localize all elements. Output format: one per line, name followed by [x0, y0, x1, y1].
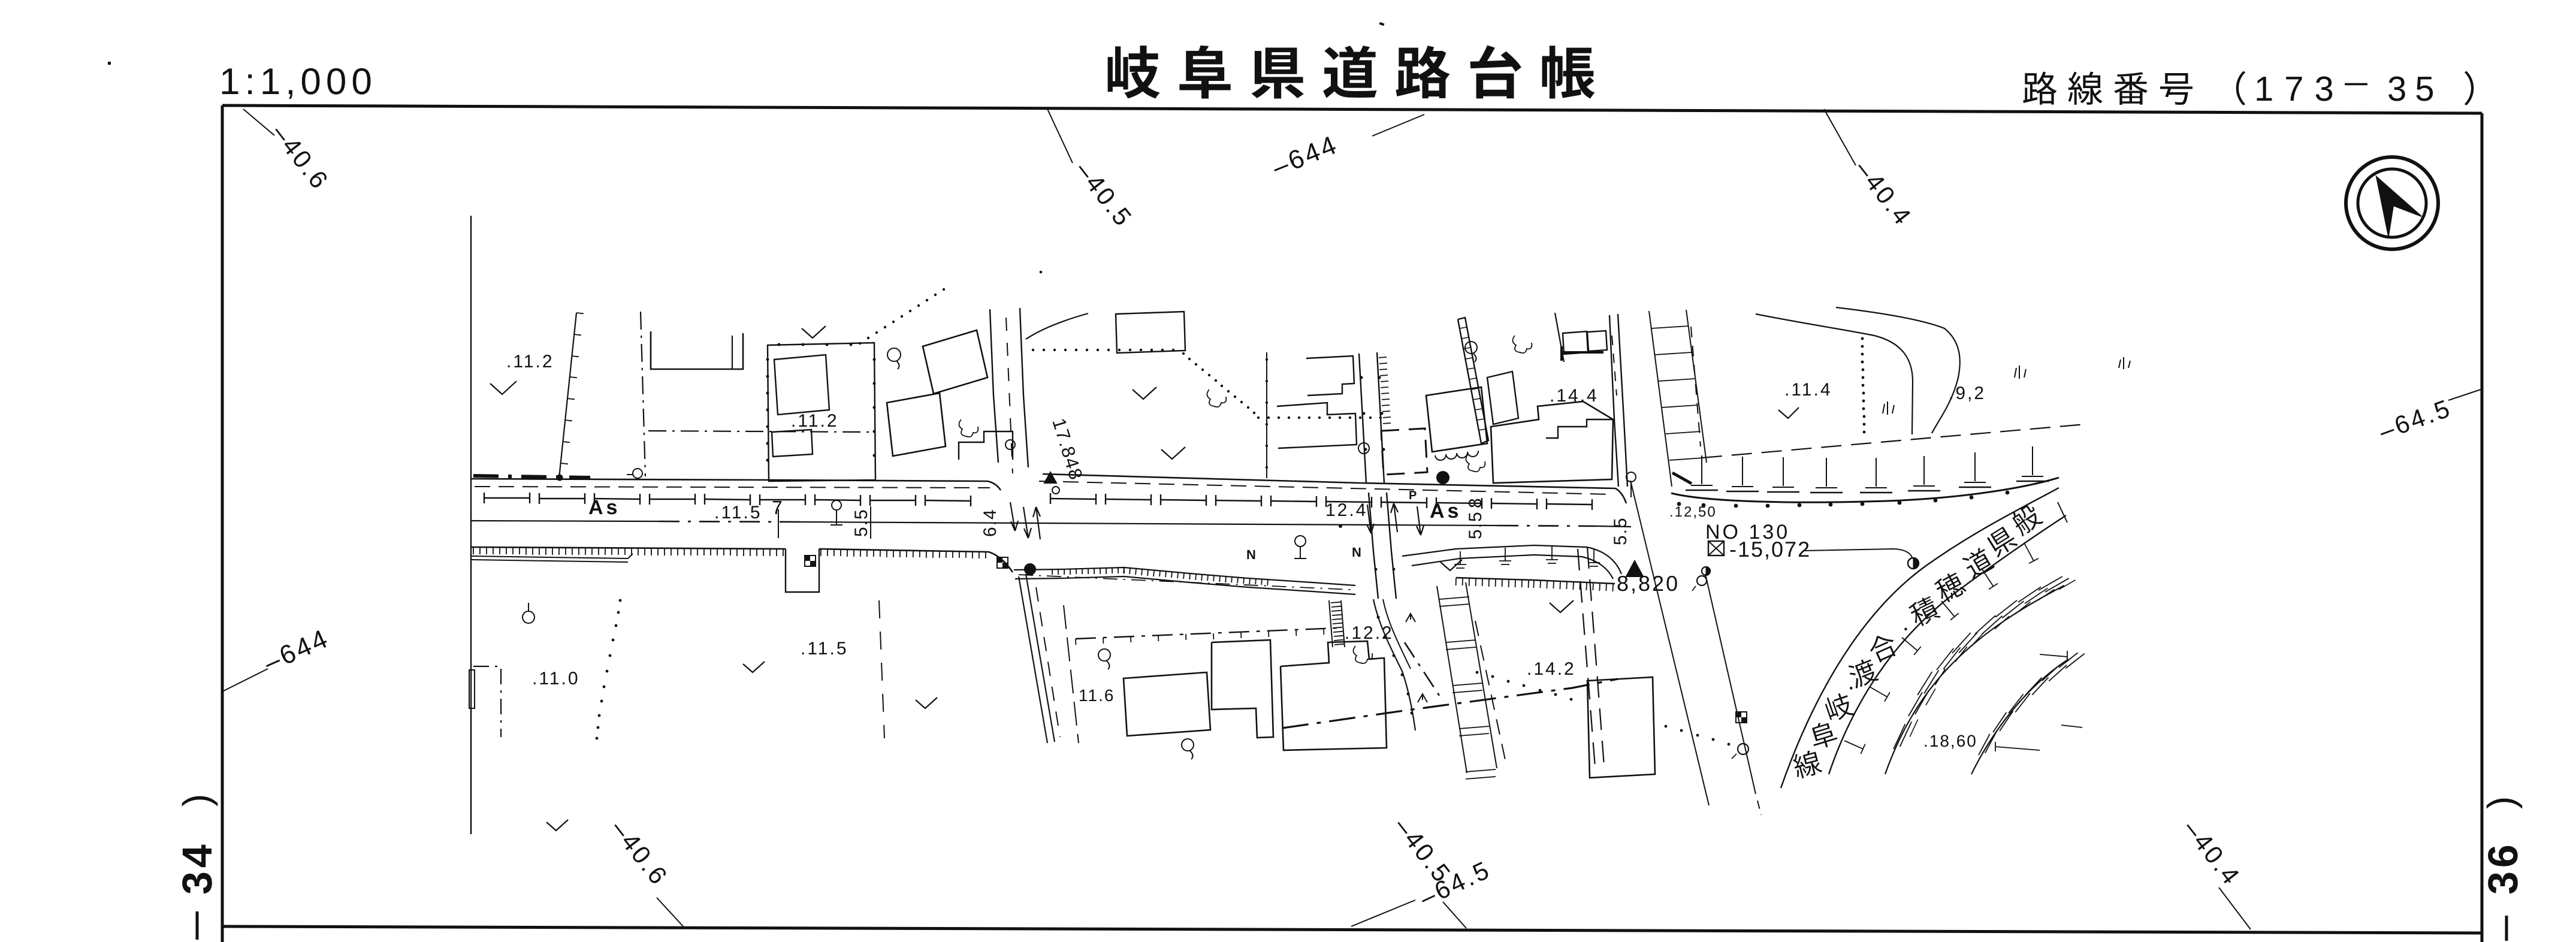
svg-text:5.5: 5.5	[851, 508, 871, 537]
svg-text:–64.5: –64.5	[2375, 394, 2456, 446]
svg-text:P: P	[1409, 489, 1417, 502]
svg-text:.18,60: .18,60	[1923, 732, 1977, 750]
svg-text:–40.4: –40.4	[2178, 815, 2246, 892]
svg-text:.12,50: .12,50	[1669, 504, 1717, 520]
svg-text:.14.4: .14.4	[1550, 386, 1599, 406]
svg-text:8,820: 8,820	[1617, 571, 1680, 596]
svg-text:（: （	[2211, 70, 2247, 110]
svg-text:6.4: 6.4	[980, 508, 1000, 537]
svg-text:7: 7	[772, 497, 783, 518]
svg-text:11.6: 11.6	[1079, 686, 1115, 705]
svg-text:36: 36	[2480, 841, 2526, 895]
svg-text:35: 35	[2387, 70, 2443, 108]
svg-text:5.5: 5.5	[1466, 511, 1485, 539]
svg-text:－: －	[2341, 68, 2372, 103]
svg-text:–644: –644	[259, 623, 334, 678]
svg-text:34: 34	[174, 841, 221, 895]
svg-text:): )	[175, 794, 218, 807]
svg-text:1:1,000: 1:1,000	[219, 61, 377, 102]
svg-text:.11.4: .11.4	[1784, 380, 1832, 400]
svg-text:.11.5: .11.5	[801, 639, 848, 659]
svg-text:–40.6: –40.6	[606, 815, 674, 892]
svg-text:.9,2: .9,2	[1949, 384, 1986, 403]
svg-text:）: ）	[2463, 70, 2499, 110]
svg-text:.14.2: .14.2	[1527, 659, 1576, 679]
svg-text:.11.2: .11.2	[506, 352, 554, 372]
svg-text:N: N	[1246, 547, 1256, 562]
svg-text:): )	[2480, 796, 2523, 809]
svg-text:17.848: 17.848	[1048, 416, 1087, 483]
svg-text:5.5: 5.5	[1611, 517, 1630, 545]
svg-text:.11.0: .11.0	[532, 669, 580, 689]
svg-text:–40.4: –40.4	[1850, 155, 1918, 232]
svg-text:12.4: 12.4	[1325, 500, 1367, 520]
svg-text:As: As	[1430, 500, 1461, 523]
svg-text:.11.2: .11.2	[791, 411, 839, 431]
svg-text:–40.5: –40.5	[1070, 156, 1138, 233]
svg-text:.11.5: .11.5	[714, 503, 762, 523]
svg-text:-15,072: -15,072	[1729, 537, 1811, 561]
svg-text:8: 8	[1466, 498, 1485, 508]
svg-text:N: N	[1352, 545, 1361, 560]
svg-text:173: 173	[2254, 70, 2345, 108]
svg-text:–40.6: –40.6	[267, 119, 335, 196]
svg-text:–644: –644	[1268, 129, 1342, 182]
svg-text:As: As	[588, 496, 620, 519]
svg-text:.12.2: .12.2	[1345, 623, 1394, 643]
